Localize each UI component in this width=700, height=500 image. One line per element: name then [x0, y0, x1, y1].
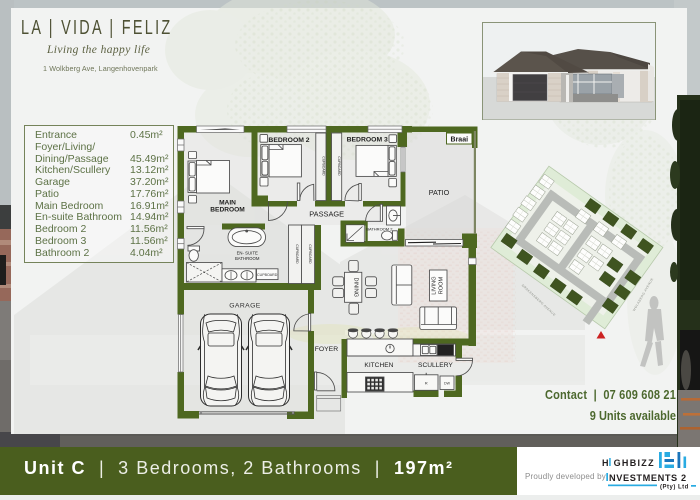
svg-text:NVESTMENTS 2: NVESTMENTS 2: [609, 473, 687, 483]
svg-text:(Pty) Ltd: (Pty) Ltd: [660, 485, 689, 491]
